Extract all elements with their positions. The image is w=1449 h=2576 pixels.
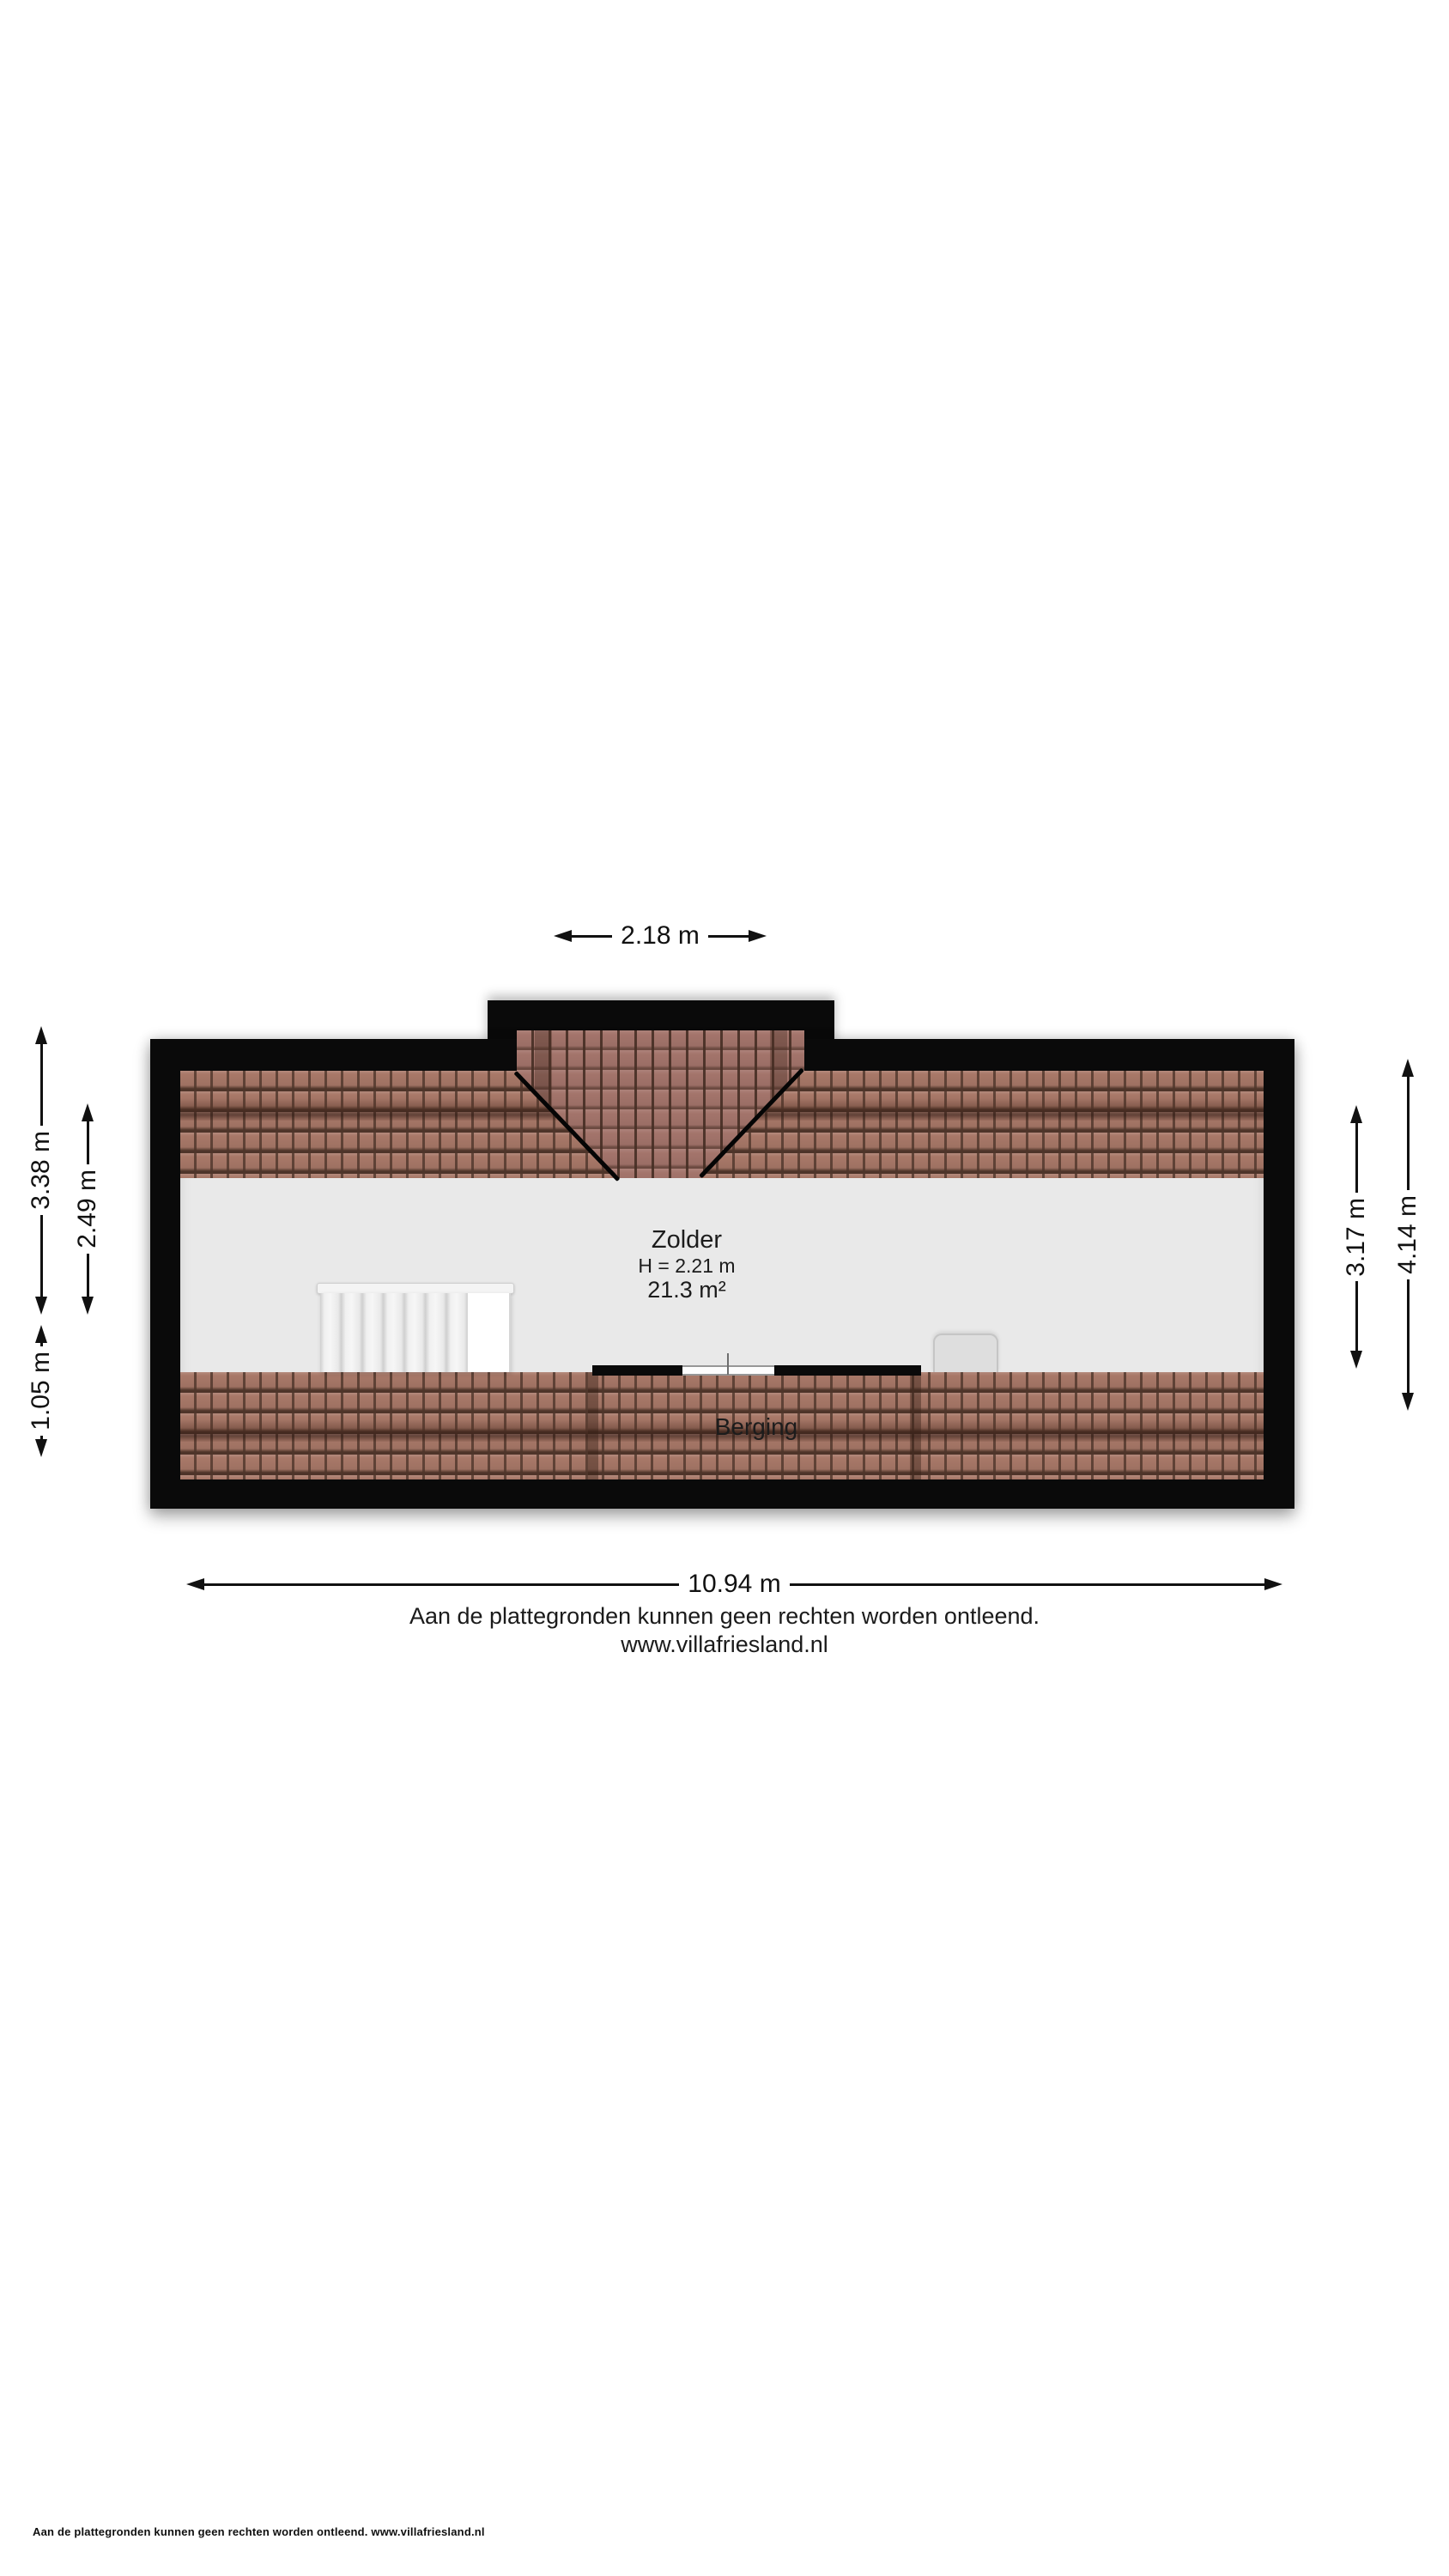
berging-boundary-left bbox=[588, 1372, 598, 1479]
dimension-left-outer: 3.38 m bbox=[25, 1026, 58, 1315]
arrow-down-icon bbox=[1350, 1351, 1362, 1369]
dimension-label: 2.18 m bbox=[621, 921, 700, 951]
arrow-up-icon bbox=[35, 1026, 47, 1044]
arrow-up-icon bbox=[1350, 1105, 1362, 1123]
chimney bbox=[933, 1334, 998, 1372]
staircase-opening bbox=[466, 1293, 511, 1372]
disclaimer-line2: www.villafriesland.nl bbox=[0, 1631, 1449, 1659]
room-height-zolder: H = 2.21 m bbox=[549, 1255, 824, 1277]
room-name-zolder: Zolder bbox=[549, 1226, 824, 1255]
arrow-down-icon bbox=[82, 1297, 94, 1315]
dimension-left-lower: 1.05 m bbox=[25, 1325, 58, 1403]
arrow-up-icon bbox=[1402, 1059, 1414, 1077]
arrow-left-icon bbox=[554, 930, 572, 942]
dimension-label: 2.49 m bbox=[73, 1170, 102, 1249]
dimension-label: 10.94 m bbox=[688, 1570, 780, 1599]
dimension-total-width: 10.94 m bbox=[186, 1571, 1282, 1598]
dimension-right-inner: 3.17 m bbox=[1340, 1105, 1373, 1369]
dimension-left-inner: 2.49 m bbox=[71, 1103, 104, 1315]
dimension-label: 4.14 m bbox=[1393, 1195, 1422, 1274]
berging-window-center-mark bbox=[727, 1353, 729, 1375]
arrow-right-icon bbox=[749, 930, 767, 942]
disclaimer: Aan de plattegronden kunnen geen rechten… bbox=[0, 1602, 1449, 1659]
floorplan-page: Zolder H = 2.21 m 21.3 m² Berging 2.18 m… bbox=[0, 0, 1449, 2576]
arrow-down-icon bbox=[35, 1439, 47, 1457]
arrow-down-icon bbox=[1402, 1393, 1414, 1411]
dimension-label: 1.05 m bbox=[27, 1352, 56, 1431]
arrow-up-icon bbox=[82, 1103, 94, 1121]
arrow-down-icon bbox=[35, 1297, 47, 1315]
room-label-berging: Berging bbox=[670, 1413, 842, 1441]
arrow-up-icon bbox=[35, 1325, 47, 1343]
dimension-label: 3.38 m bbox=[27, 1131, 56, 1210]
footer-note: Aan de plattegronden kunnen geen rechten… bbox=[33, 2525, 485, 2538]
dimension-right-outer: 4.14 m bbox=[1391, 1059, 1424, 1411]
arrow-right-icon bbox=[1264, 1578, 1282, 1590]
berging-boundary-right bbox=[910, 1372, 921, 1479]
dimension-dormer-width: 2.18 m bbox=[554, 922, 767, 950]
room-label-zolder: Zolder H = 2.21 m 21.3 m² bbox=[549, 1226, 824, 1303]
arrow-left-icon bbox=[186, 1578, 204, 1590]
dimension-label: 3.17 m bbox=[1342, 1198, 1371, 1277]
room-area-zolder: 21.3 m² bbox=[549, 1277, 824, 1303]
disclaimer-line1: Aan de plattegronden kunnen geen rechten… bbox=[0, 1602, 1449, 1631]
